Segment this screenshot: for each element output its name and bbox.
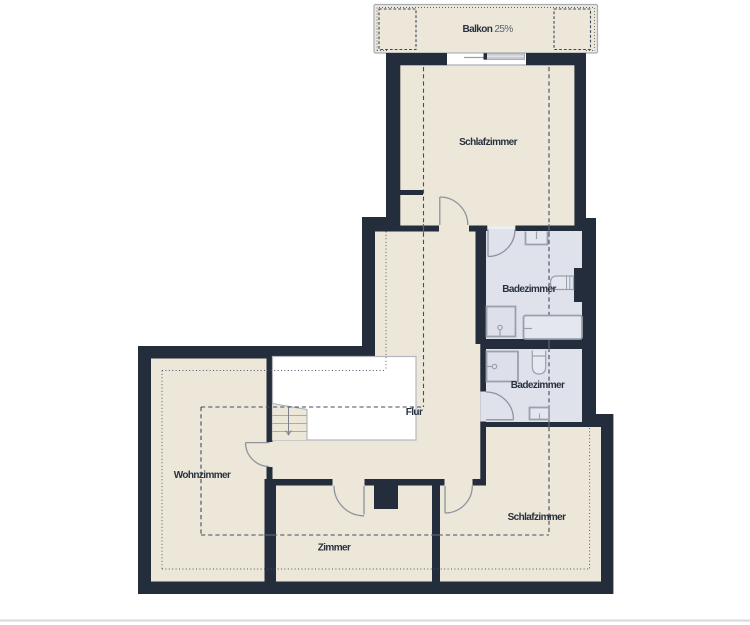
svg-text:Schlafzimmer: Schlafzimmer [508,512,567,523]
svg-text:Flur: Flur [406,407,423,418]
svg-text:Wohnzimmer: Wohnzimmer [174,470,231,481]
svg-text:Zimmer: Zimmer [318,543,351,554]
svg-text:Badezimmer: Badezimmer [502,284,556,295]
svg-text:Balkon 25%: Balkon 25% [463,24,514,35]
svg-text:Badezimmer: Badezimmer [511,380,565,391]
svg-text:Schlafzimmer: Schlafzimmer [459,137,518,148]
